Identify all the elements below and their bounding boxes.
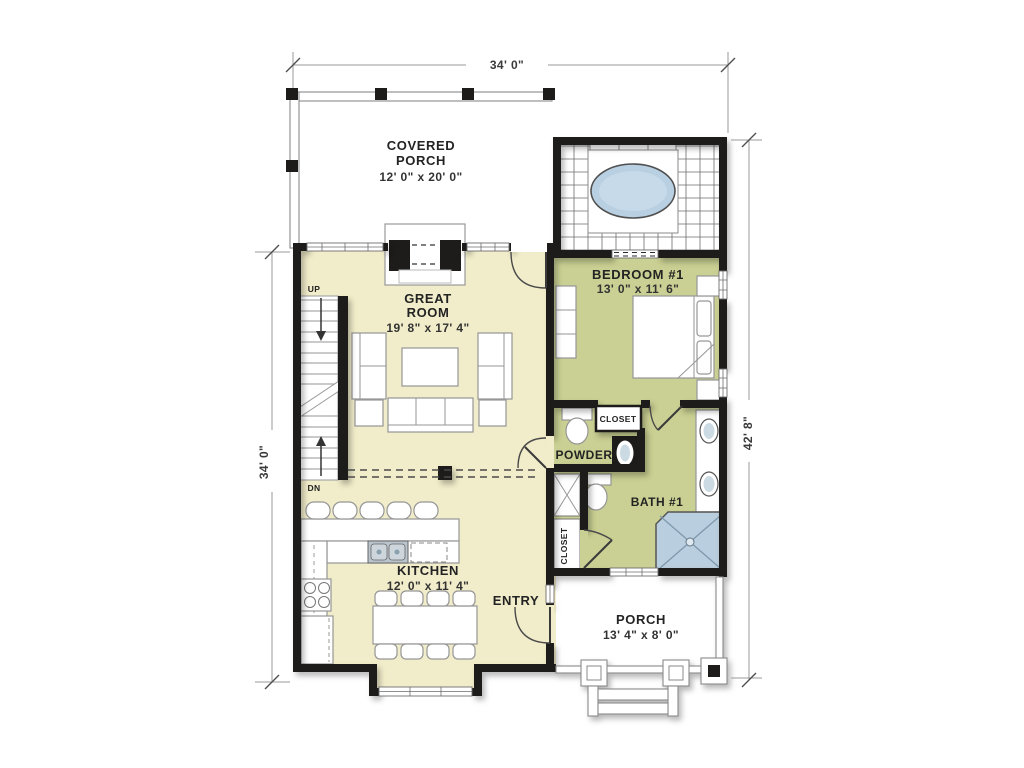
spa-water xyxy=(599,171,667,211)
porch-rail-top xyxy=(290,92,552,101)
porch-door-opening xyxy=(511,243,547,252)
great-room-dims: 19' 8" x 17' 4" xyxy=(386,321,469,335)
fireplace-jamb-left xyxy=(389,240,410,271)
bar-stools xyxy=(306,502,438,519)
staircase xyxy=(294,296,342,480)
sofa xyxy=(388,398,473,432)
step-stringer-left xyxy=(588,686,598,716)
bath-toilet-bowl xyxy=(585,484,607,510)
dining-chair xyxy=(427,644,449,659)
fireplace-hearth xyxy=(399,270,451,283)
powder-door-opening xyxy=(546,436,554,468)
great-room-label-line2: ROOM xyxy=(407,305,450,320)
step-stringer-right xyxy=(668,686,678,716)
entry-label: ENTRY xyxy=(493,593,540,608)
bedroom-closet-label: CLOSET xyxy=(600,414,637,424)
bedroom-1-label: BEDROOM #1 xyxy=(592,267,684,282)
great-room-label-line1: GREAT xyxy=(404,291,452,306)
entry-closet-label: CLOSET xyxy=(559,527,569,564)
dining-chair xyxy=(427,591,449,606)
fireplace-jamb-right xyxy=(440,240,461,271)
covered-porch-label-line1: COVERED xyxy=(387,138,456,153)
bedroom-deck-window xyxy=(612,250,658,258)
ottoman-left xyxy=(355,400,383,426)
porch-post xyxy=(375,88,387,100)
shower-drain xyxy=(686,538,694,546)
dining-chair xyxy=(401,591,423,606)
covered-porch-label-line2: PORCH xyxy=(396,153,446,168)
bar-stool xyxy=(306,502,330,519)
stair-down-label: DN xyxy=(307,483,320,493)
dining-table xyxy=(373,606,477,644)
sink-drain-right xyxy=(395,550,400,555)
bar-stool xyxy=(387,502,411,519)
bedroom-1-dims: 13' 0" x 11' 6" xyxy=(597,282,679,296)
sink-drain-left xyxy=(377,550,382,555)
floor-plan: 34' 0" 34' 0" 42' 8" COVERED PORCH 12' 0… xyxy=(0,0,1024,768)
kitchen-label: KITCHEN xyxy=(397,563,459,578)
front-porch-rail-right xyxy=(716,577,723,668)
nightstand-bottom xyxy=(697,380,722,400)
dining-chair xyxy=(401,644,423,659)
kitchen-bar-counter xyxy=(301,519,459,541)
porch-column-right xyxy=(663,660,689,686)
powder-toilet-bowl xyxy=(566,418,588,444)
kitchen-dims: 12' 0" x 11' 4" xyxy=(387,579,469,593)
top-dimension-label: 34' 0" xyxy=(490,58,524,72)
vanity-sink-top-basin xyxy=(704,423,715,439)
bar-stool xyxy=(333,502,357,519)
porch-post xyxy=(286,160,298,172)
right-dimension-label: 42' 8" xyxy=(741,416,755,450)
left-dimension-label: 34' 0" xyxy=(257,445,271,479)
ottoman-right xyxy=(479,400,506,426)
stair-up-label: UP xyxy=(308,284,321,294)
dresser xyxy=(556,286,576,358)
bath-door-opening xyxy=(580,530,588,568)
bar-stool xyxy=(414,502,438,519)
dining-chair xyxy=(453,644,475,659)
vanity-sink-bottom-basin xyxy=(704,476,715,492)
nightstand-top xyxy=(697,276,722,296)
bar-stool xyxy=(360,502,384,519)
great-room-furniture xyxy=(352,333,512,432)
dining-chair xyxy=(375,644,397,659)
refrigerator xyxy=(301,616,333,664)
pillow-top xyxy=(697,301,711,336)
dining-chair xyxy=(453,591,475,606)
fireplace xyxy=(385,224,465,285)
bath-1-label: BATH #1 xyxy=(631,495,684,509)
porch-step-1 xyxy=(598,689,668,700)
porch-dims: 13' 4" x 8' 0" xyxy=(603,628,679,642)
porch-label: PORCH xyxy=(616,612,666,627)
porch-step-2 xyxy=(598,703,668,714)
powder-label: POWDER xyxy=(556,448,613,462)
covered-porch-dims: 12' 0" x 20' 0" xyxy=(379,170,462,184)
powder-sink-basin xyxy=(620,445,630,462)
stove xyxy=(301,579,331,611)
porch-corner-post-core xyxy=(708,665,720,677)
coffee-table xyxy=(402,348,458,386)
porch-column-left xyxy=(581,660,607,686)
porch-post xyxy=(543,88,555,100)
porch-post xyxy=(462,88,474,100)
porch-post xyxy=(286,88,298,100)
dining-chair xyxy=(375,591,397,606)
